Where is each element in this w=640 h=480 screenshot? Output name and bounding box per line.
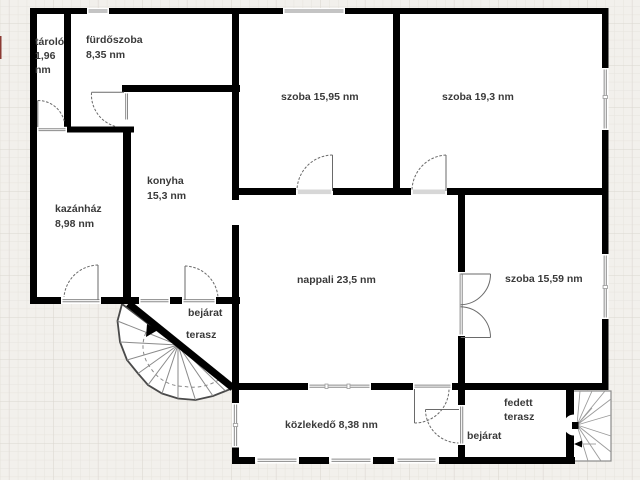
svg-text:nappali 23,5 nm: nappali 23,5 nm [297, 274, 376, 286]
svg-text:terasz: terasz [504, 411, 534, 423]
svg-text:szoba 15,59 nm: szoba 15,59 nm [505, 273, 583, 285]
svg-text:tároló: tároló [35, 36, 64, 48]
svg-text:kazánház: kazánház [55, 203, 102, 215]
svg-text:bejárat: bejárat [188, 307, 223, 319]
svg-text:1,96: 1,96 [35, 50, 56, 62]
svg-text:bejárat: bejárat [467, 430, 502, 442]
svg-text:terasz: terasz [186, 329, 216, 341]
svg-text:konyha: konyha [147, 175, 184, 187]
svg-text:közlekedő 8,38 nm: közlekedő 8,38 nm [285, 419, 378, 431]
svg-text:szoba 19,3 nm: szoba 19,3 nm [442, 91, 514, 103]
svg-text:8,98 nm: 8,98 nm [55, 218, 94, 230]
svg-text:fedett: fedett [504, 397, 533, 409]
svg-text:szoba 15,95 nm: szoba 15,95 nm [281, 91, 359, 103]
svg-text:8,35 nm: 8,35 nm [86, 49, 125, 61]
svg-text:nm: nm [35, 64, 51, 76]
svg-text:15,3 nm: 15,3 nm [147, 190, 186, 202]
svg-text:fürdőszoba: fürdőszoba [86, 34, 143, 46]
